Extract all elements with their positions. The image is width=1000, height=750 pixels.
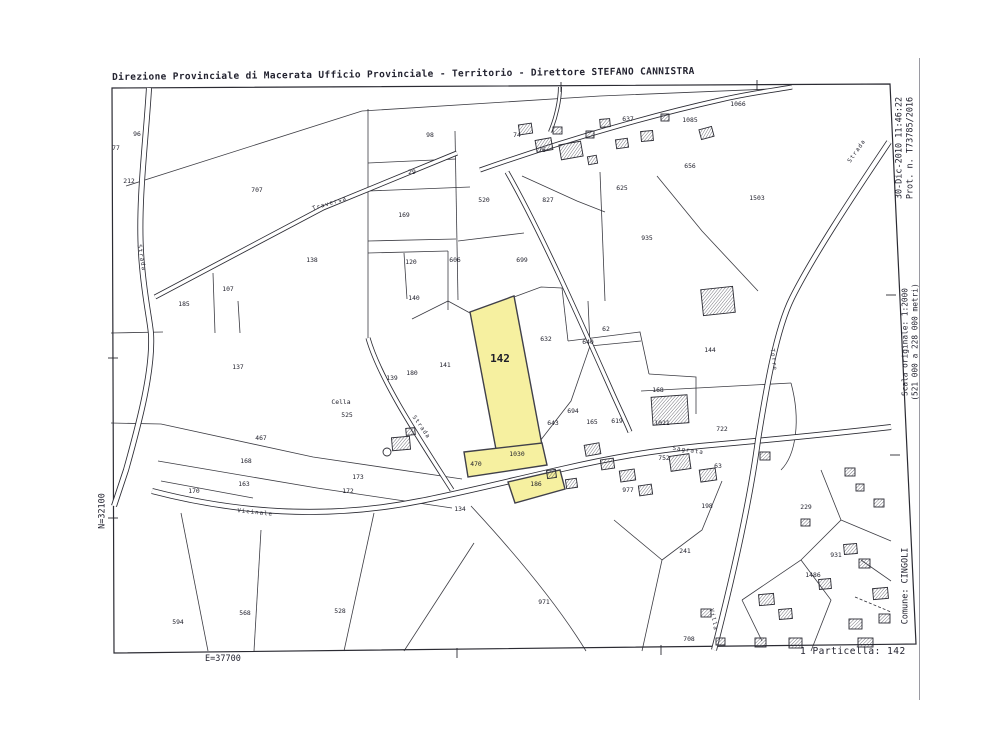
building: [559, 141, 583, 160]
parcel-label: 62: [602, 325, 610, 333]
parcel-boundary: [662, 481, 722, 560]
parcel-boundary: [368, 251, 448, 253]
parcel-label: 76: [538, 146, 546, 154]
parcel-boundary: [781, 383, 796, 470]
parcel-label: 107: [222, 285, 234, 293]
comune-label: Comune: CINGOLI: [901, 548, 912, 625]
parcel-label: 229: [800, 503, 812, 511]
building: [619, 469, 635, 482]
building: [873, 587, 889, 599]
parcel-142: [470, 296, 542, 460]
parcel-boundary-dashed: [855, 597, 891, 612]
parcel-label: 470: [470, 460, 482, 468]
road-casing: [714, 142, 889, 650]
building: [856, 484, 864, 491]
north-coordinate-label: N=32100: [98, 493, 109, 529]
parcel-label: 694: [567, 407, 579, 415]
parcel-label: 971: [538, 598, 550, 606]
east-coordinate-label: E=37700: [205, 654, 241, 664]
building: [553, 127, 562, 134]
parcel-label: 528: [334, 607, 346, 615]
parcel-label: 29: [408, 168, 416, 176]
parcel-label: 1503: [749, 194, 765, 202]
building: [638, 484, 652, 496]
building: [801, 519, 810, 526]
parcel-boundary: [344, 513, 374, 651]
parcel-label: 186: [530, 480, 542, 488]
parcel-label: 241: [679, 547, 691, 555]
building: [565, 478, 577, 488]
building: [584, 443, 601, 456]
parcel-label: 643: [547, 419, 559, 427]
building: [879, 614, 890, 623]
parcel-label: 63: [714, 462, 722, 470]
parcel-label: 172: [342, 487, 354, 495]
building: [716, 638, 725, 645]
parcel-label: 168: [240, 457, 252, 465]
parcel-label: 185: [178, 300, 190, 308]
parcel-label: 632: [540, 335, 552, 343]
parcel-label: 198: [701, 502, 713, 510]
parcel-label: 98: [426, 131, 434, 139]
parcel-label: 525: [341, 411, 353, 419]
parcel-label: 77: [112, 144, 120, 152]
parcel-label: 606: [449, 256, 461, 264]
parcel-label: 935: [641, 234, 653, 242]
parcel-label: 180: [406, 369, 418, 377]
parcel-label: 594: [172, 618, 184, 626]
building: [600, 119, 611, 128]
parcel-label: 931: [830, 551, 842, 559]
building: [701, 286, 736, 315]
road-name-label: Traversa: [312, 196, 348, 212]
parcel-boundary: [455, 131, 458, 300]
parcel-boundary: [448, 301, 470, 313]
parcel-label: 169: [398, 211, 410, 219]
parcel-boundary: [404, 543, 474, 651]
parcel-label: 707: [251, 186, 263, 194]
parcel-boundary: [238, 301, 240, 333]
parcel-label: Cella: [331, 398, 350, 406]
well-marker: [383, 448, 391, 456]
parcel-label: 977: [622, 486, 634, 494]
parcel-label: 139: [386, 374, 398, 382]
parcel-label: 120: [405, 258, 417, 266]
parcel-label: 212: [123, 177, 135, 185]
parcel-boundary: [514, 287, 562, 297]
parcel-boundary: [600, 172, 605, 301]
building: [849, 619, 862, 629]
building: [661, 114, 669, 121]
parcel-label: 163: [238, 480, 250, 488]
building: [586, 131, 594, 138]
parcel-boundary: [181, 513, 208, 651]
road-surface: [714, 142, 889, 650]
parcel-label: 1486: [805, 571, 821, 579]
parcel-label: 619: [611, 417, 623, 425]
parcel-boundary: [213, 273, 215, 333]
parcel-label: 637: [622, 115, 634, 123]
parcel-boundary: [657, 176, 758, 291]
building: [615, 138, 628, 149]
parcel-label: 134: [454, 505, 466, 513]
parcel-boundary: [742, 600, 762, 641]
building: [641, 130, 654, 141]
building: [391, 436, 410, 451]
parcel-label: 140: [408, 294, 420, 302]
parcel-label: 752: [658, 454, 670, 462]
print-datetime: 30-Dic-2010 11:46:22: [894, 97, 905, 199]
parcel-boundary: [614, 520, 662, 651]
parcel-label: 722: [716, 425, 728, 433]
cadastral-map-sheet: 7796212707982916952013812060610718514074…: [0, 0, 1000, 750]
cadastral-map-canvas: 7796212707982916952013812060610718514074…: [0, 0, 1000, 750]
parcel-label: 170: [188, 487, 200, 495]
building: [874, 499, 884, 507]
building: [819, 578, 832, 589]
building: [779, 608, 793, 619]
building: [669, 454, 691, 472]
parcel-boundary: [458, 233, 524, 241]
building: [406, 428, 416, 436]
parcel-boundary: [368, 187, 470, 191]
parcel-label: 1085: [682, 116, 698, 124]
road-name-label: Strada: [847, 139, 867, 165]
building: [844, 543, 858, 554]
building: [759, 593, 775, 605]
road-name-label: Villa: [708, 608, 719, 631]
parcel-boundary: [841, 520, 891, 541]
parcel-label: 640: [582, 338, 594, 346]
parcel-label: 1066: [730, 100, 746, 108]
scan-edge-line: [919, 58, 920, 700]
parcel-boundary: [254, 530, 261, 651]
parcel-boundary: [568, 332, 649, 374]
building: [859, 559, 870, 568]
parcel-boundary: [412, 301, 448, 319]
building: [699, 468, 717, 482]
parcel-label: 827: [542, 196, 554, 204]
parcel-label: 144: [704, 346, 716, 354]
parcel-label: 74: [513, 131, 521, 139]
parcel-boundary: [111, 332, 163, 333]
building: [600, 458, 614, 470]
building: [755, 638, 766, 647]
parcel-boundary: [126, 111, 362, 186]
protocol-date-block: 30-Dic-2010 11:46:22 Prot. n. T73785/201…: [894, 97, 915, 199]
parcel-boundary: [590, 341, 641, 346]
parcel-label: 96: [133, 130, 141, 138]
parcel-label: 1021: [654, 419, 670, 427]
building: [760, 452, 770, 460]
parcel-boundary: [471, 506, 586, 651]
parcel-label: 168: [652, 386, 664, 394]
parcel-boundary: [522, 176, 605, 212]
parcel-label: 173: [352, 473, 364, 481]
parcel-label: 656: [684, 162, 696, 170]
parcel-label: 625: [616, 184, 628, 192]
highlighted-parcel-legend: 1 Particella: 142: [800, 646, 906, 657]
parcel-boundary: [368, 239, 456, 241]
parcel-label: 141: [439, 361, 451, 369]
parcel-label: 467: [255, 434, 267, 442]
protocol-number: Prot. n. T73785/2016: [905, 97, 916, 199]
parcel-label: 137: [232, 363, 244, 371]
building: [699, 126, 714, 139]
parcel-label: 142: [490, 352, 510, 365]
parcel-label: 699: [516, 256, 528, 264]
parcel-label: 138: [306, 256, 318, 264]
building: [845, 468, 855, 476]
parcel-label: 568: [239, 609, 251, 617]
parcel-label: 708: [683, 635, 695, 643]
road-name-label: Strada: [136, 244, 147, 272]
parcel-label: 165: [586, 418, 598, 426]
building: [546, 469, 556, 478]
building: [587, 155, 597, 164]
scale-block: Scala originale: 1:2000 (521 000 a 228 0…: [900, 283, 919, 400]
scale-original: Scala originale: 1:2000: [900, 283, 910, 400]
parcel-label: 520: [478, 196, 490, 204]
parcel-label: 1030: [509, 450, 525, 458]
